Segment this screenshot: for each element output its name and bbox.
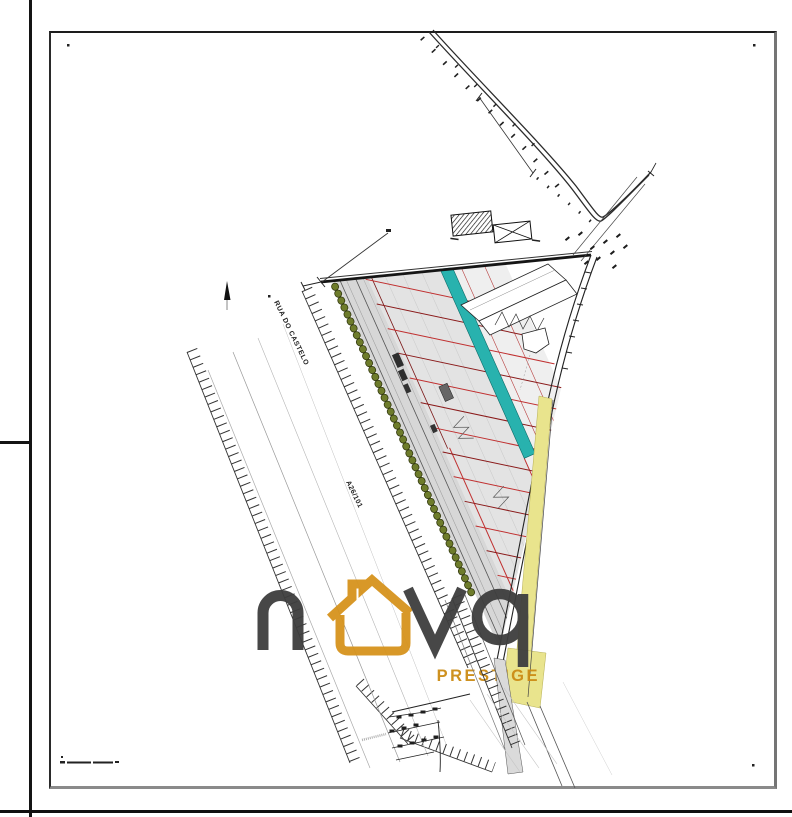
junction-marks	[565, 231, 628, 269]
site-plan-drawing: PRESTIGE	[0, 0, 792, 817]
parcel-ref-label: A26/101	[344, 480, 363, 509]
bottom-rule-line	[0, 810, 792, 813]
logo-letter-n	[263, 596, 298, 651]
north-arrow	[224, 281, 231, 310]
left-margin-line	[29, 0, 32, 817]
crossed-box	[493, 220, 540, 246]
logo-house-icon	[330, 580, 410, 651]
detail-cluster	[362, 694, 470, 772]
street-label: RUA DO CASTELO	[272, 300, 309, 367]
property-line	[322, 229, 391, 282]
prestige-label: PRESTIGE	[437, 667, 540, 685]
logo-letter-v	[408, 589, 462, 647]
plan-labels: RUA DO CASTELO A26/101	[268, 295, 363, 509]
drawing-page: PRESTIGE	[0, 0, 792, 817]
footer-micro-marks	[60, 761, 119, 764]
left-margin-tick	[0, 441, 30, 444]
